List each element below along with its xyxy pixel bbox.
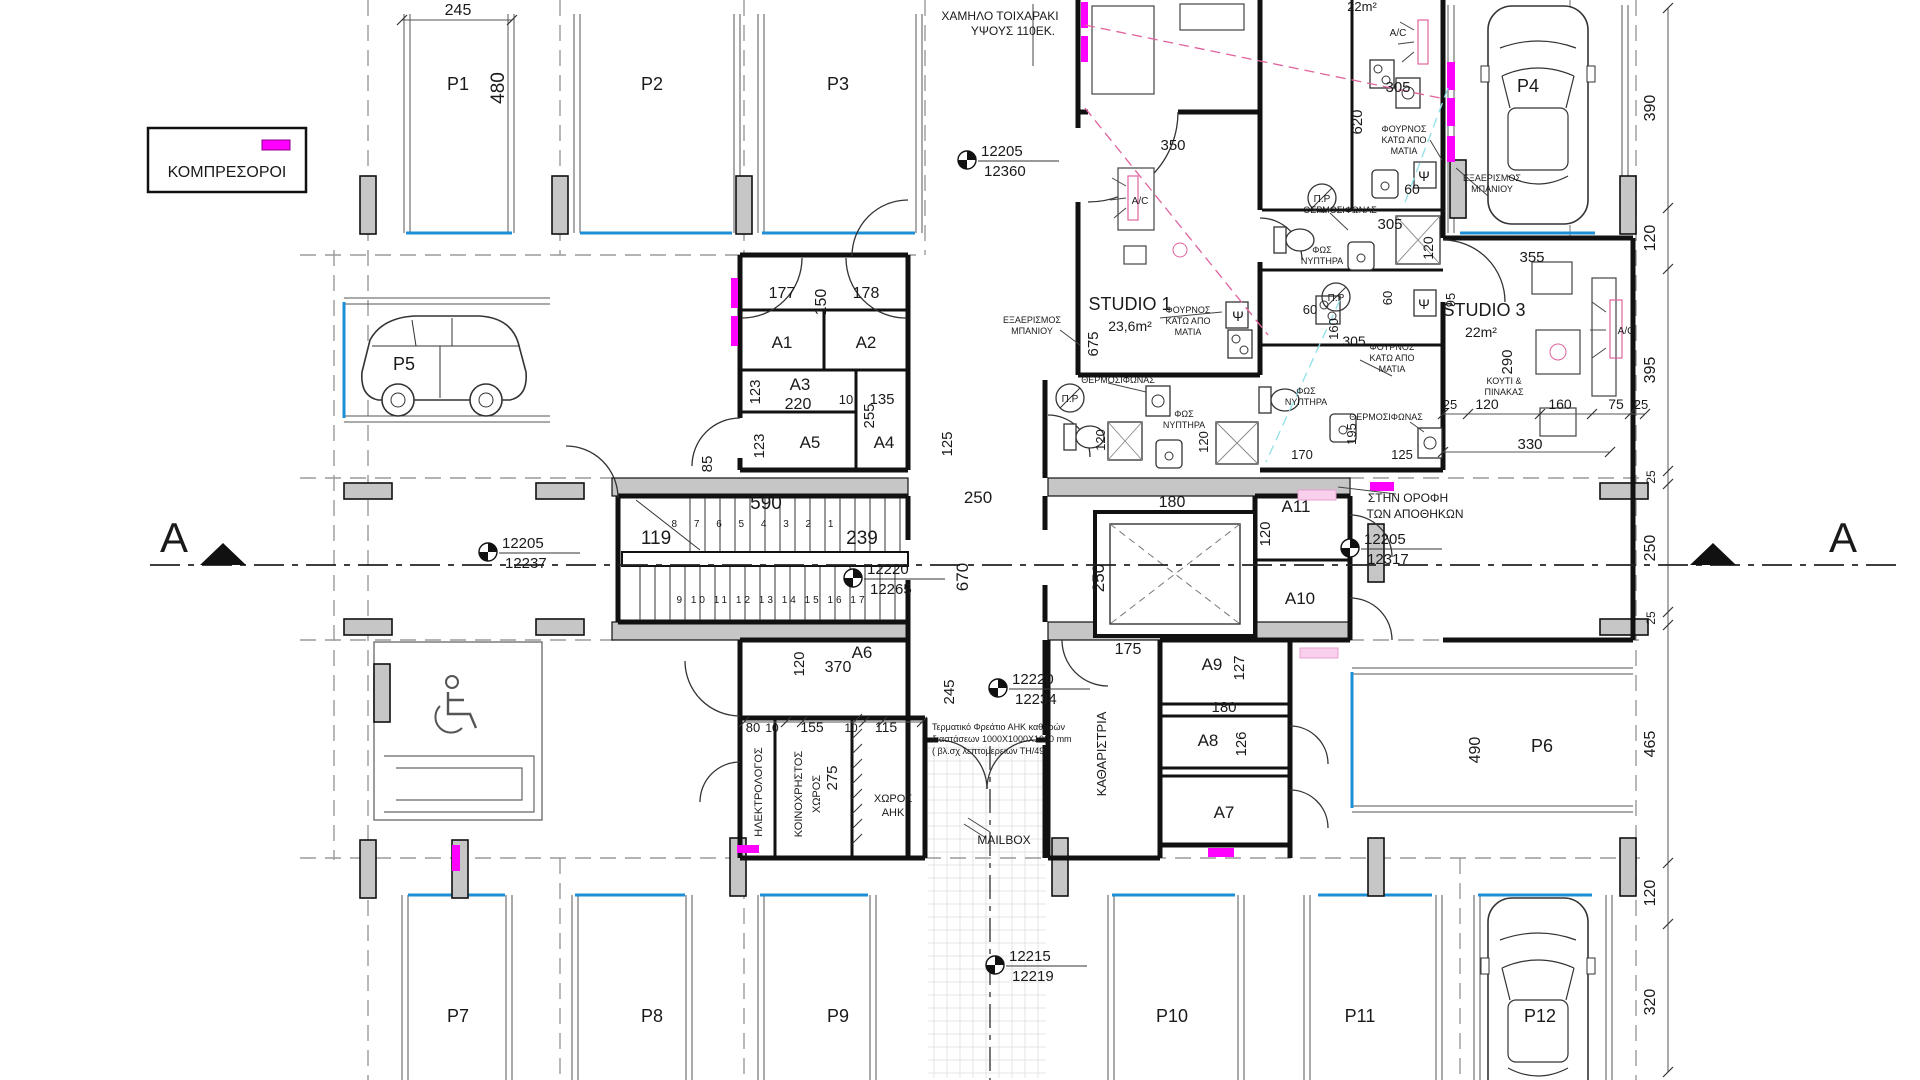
section-arrow-right [1690,543,1736,565]
dimension-123-36: 123 [747,379,764,404]
door-arc-14 [1290,790,1328,828]
stair-numbers-upper: 8 7 6 5 4 3 2 1 [672,519,841,530]
floor-plan-drawing: 1220512360122051223712220122651220512317… [0,0,1920,1080]
dimension-lines [397,3,1673,1077]
dimension-25-7: 25 [1644,611,1658,625]
dimension-245-61: 245 [941,679,958,704]
dimension-75-30: 75 [1608,396,1624,412]
door-arc-10 [1443,240,1505,302]
column [1620,838,1636,896]
dimension-275-67: 275 [824,765,841,790]
column [536,483,584,499]
compressor-marker [731,278,738,308]
section-letter-left: A [160,514,188,561]
dimension-120-59: 120 [791,651,808,676]
furniture [1592,278,1616,396]
elevator-shaft [1095,512,1255,636]
door-arc-13 [1290,726,1328,764]
parking-label-P9: P9 [827,1006,849,1026]
annotation-38: ΚΟΥΤΙ & [1487,376,1522,386]
annotation-13: ΜΑΤΙΑ [1175,327,1202,337]
column [1600,483,1648,499]
driveway-hatch [928,744,1046,1080]
section-marker-left: A [160,514,246,565]
dimension-305-12: 305 [1385,79,1410,96]
annotation-39: ΠΙΝΑΚΑΣ [1484,387,1524,397]
parking-label-P4: P4 [1517,76,1539,96]
dimension-60-21: 60 [1380,291,1395,305]
compressor-marker [452,845,460,871]
door-arc-12 [1350,598,1392,640]
car-symbols [362,6,1595,1080]
dimension-10-65: 10 [844,721,858,735]
room-label-A4: A4 [874,433,895,452]
annotation-19: ΜΑΤΙΑ [1379,364,1406,374]
label-studio2-area: 22m² [1347,0,1377,14]
furniture [1532,262,1572,294]
column [344,483,392,499]
column [1368,838,1384,896]
annotation-31: Π.Ρ [1328,293,1345,304]
dimension-370-60: 370 [825,659,852,676]
text-labels: 2454803901203952525025465120320350305620… [393,0,1659,1026]
dimension-10-63: 10 [765,721,779,735]
dimension-125-42: 125 [939,431,956,456]
note-vent-bath-2b: ΜΠΑΝΙΟΥ [1471,184,1513,194]
stair-landing-rail [622,552,908,566]
dimension-25-5: 25 [1644,470,1658,484]
furniture [1092,6,1154,94]
column [552,176,568,234]
annotation-26: ΝΥΠΤΗΡΑ [1163,420,1205,430]
dimension-330-32: 330 [1517,436,1542,453]
dimension-175-55: 175 [1115,641,1142,658]
leader-line-7 [1410,422,1424,432]
annotation-18: ΚΑΤΩ ΑΠΟ [1370,353,1415,363]
dimension-465-8: 465 [1642,731,1659,758]
column [1450,160,1466,218]
survey-marker-12205-12237: 1220512237 [479,535,580,572]
dimension-180-49: 180 [1159,494,1186,511]
dimension-120-51: 120 [1257,521,1274,546]
dimension-180-57: 180 [1211,699,1236,716]
dimension-123-41: 123 [751,433,768,458]
annotation-12: ΚΑΤΩ ΑΠΟ [1166,316,1211,326]
sink [1156,440,1182,468]
compressor-marker [731,316,738,346]
note-ahk-2: διαστάσεων 1000X1000X1000 mm [932,734,1072,744]
annotation-21: ΘΕΡΜΟΣΙΦΩΝΑΣ [1081,375,1155,385]
furniture [1180,4,1244,30]
label-studio1: STUDIO 1 [1088,294,1171,314]
annotation-40: ΣΤΗΝ ΟΡΟΦΗ [1368,491,1448,505]
column [1600,619,1648,635]
survey-upper-value: 12220 [1012,671,1054,688]
parking-label-P3: P3 [827,74,849,94]
column [360,840,376,898]
annotation-15: ΚΑΤΩ ΑΠΟ [1382,135,1427,145]
survey-upper-value: 12220 [867,561,909,578]
annotation-47: ΑΗΚ [882,807,905,819]
column [1620,176,1636,234]
label-studio3-area: 22m² [1465,324,1497,340]
compressor-marker [1081,2,1088,28]
dimension-480-1: 480 [488,72,509,104]
annotation-42: ΚΑΘΑΡΙΣΤΡΙΑ [1094,711,1109,796]
annotation-46: ΧΩΡΟΣ [874,793,912,805]
dimension-120-28: 120 [1475,396,1499,412]
survey-lower-value: 12219 [1012,968,1054,985]
toilet-tank [1064,424,1076,450]
column [374,664,390,722]
annotation-43: ΗΛΕΚΤΡΟΛΟΓΟΣ [753,747,765,837]
room-label-A2: A2 [856,333,877,352]
dimension-120-9: 120 [1642,880,1659,907]
toilet-tank [1259,387,1271,413]
annotation-11: ΦΟΥΡΝΟΣ [1166,305,1211,315]
annotation-27: ΦΩΣ [1296,386,1316,396]
annotation-24: ΝΥΠΤΗΡΑ [1301,256,1343,266]
parking-label-P6: P6 [1531,736,1553,756]
dimension-195-24: 195 [1344,423,1359,445]
section-letter-right: A [1829,514,1857,561]
legend-label: ΚΟΜΠΡΕΣΟΡΟΙ [168,164,287,181]
furniture [1124,246,1146,264]
furniture [1536,330,1580,374]
annotation-35: A/C [1132,196,1149,207]
dimension-290-19: 290 [1499,349,1516,374]
annotation-16: ΜΑΤΙΑ [1391,146,1418,156]
dimension-60-20: 60 [1303,302,1317,317]
column [360,176,376,234]
parking-label-P5: P5 [393,354,415,374]
parking-label-P8: P8 [641,1006,663,1026]
annotation-14: ΦΟΥΡΝΟΣ [1382,124,1427,134]
dimension-85-43: 85 [699,456,716,473]
door-arc-5 [685,661,740,716]
leader-line-9 [1430,140,1442,160]
ac-unit [1418,20,1428,64]
stair-numbers-lower: 9 10 11 12 13 14 15 16 17 [676,595,867,606]
column [536,619,584,635]
dimension-160-22: 160 [1326,318,1341,340]
dimension-590-44: 590 [750,493,782,514]
compressor-marker [1081,36,1088,62]
survey-upper-value: 12205 [1364,531,1406,548]
room-label-A6: A6 [852,643,873,662]
survey-lower-value: 12317 [1367,551,1409,568]
dimension-25-31: 25 [1634,397,1648,412]
survey-lower-value: 12237 [505,555,547,572]
label-studio3: STUDIO 3 [1442,300,1525,320]
annotation-30: Π.Ρ [1062,394,1079,405]
floor-plan-page: 1220512360122051223712220122651220512317… [0,0,1920,1080]
note-low-wall-line2: ΥΨΟΥΣ 110ΕΚ. [971,24,1055,38]
dimension-120-3: 120 [1642,225,1659,252]
stove [1228,330,1252,358]
dimension-220-37: 220 [785,396,812,413]
dimension-120-54: 120 [1196,431,1211,453]
dimension-125-26: 125 [1391,447,1413,462]
compressor-marker [1447,98,1455,126]
pale-pink-marker [1300,648,1338,658]
dimension-160-29: 160 [1548,396,1572,412]
survey-marker-12215-12219: 1221512219 [986,948,1087,985]
sink [1372,170,1398,198]
survey-upper-value: 12205 [502,535,544,552]
note-vent-bath-1a: ΕΞΑΕΡΙΣΜΟΣ [1003,315,1061,325]
compressor-marker [1208,848,1234,857]
dimension-150-34: 150 [813,289,830,316]
car-side-view-p5 [362,316,526,416]
legend-box [148,128,306,192]
section-marker-right: A [1690,514,1857,565]
accessible-parking-symbol [435,676,476,733]
dimension-119-45: 119 [641,528,671,549]
room-label-A8: A8 [1198,731,1219,750]
slab-band-1 [612,622,908,640]
dimension-255-40: 255 [861,403,878,428]
note-ahk-3: ( βλ.σχ λεπτομερειών ΤΗ/49) [932,746,1047,756]
annotation-22: ΘΕΡΜΟΣΙΦΩΝΑΣ [1349,412,1423,422]
car-top-view [1481,898,1595,1080]
annotation-44: ΚΟΙΝΟΧΡΗΣΤΟΣ [793,751,805,838]
compressor-marker [1447,62,1455,90]
dimension-170-25: 170 [1291,447,1313,462]
survey-upper-value: 12205 [981,143,1023,160]
water-heater [1418,428,1442,458]
survey-lower-value: 12360 [984,163,1026,180]
door-arc-3 [852,200,908,256]
annotation-34: Ψ [1232,308,1244,324]
dimension-305-23: 305 [1342,333,1366,349]
sink [1348,242,1374,270]
light-circle [1173,243,1187,257]
parking-label-P7: P7 [447,1006,469,1026]
accessible-platform [384,756,534,812]
room-label-A10: A10 [1285,589,1315,608]
annotation-20: ΘΕΡΜΟΣΙΦΩΝΑΣ [1303,205,1377,215]
dimension-675-52: 675 [1085,331,1102,356]
room-label-A1: A1 [772,333,793,352]
legend-kompresoroi: ΚΟΜΠΡΕΣΟΡΟΙ [148,128,306,192]
parking-label-P12: P12 [1524,1006,1556,1026]
note-vent-bath-2a: ΕΞΑΕΡΙΣΜΟΣ [1463,173,1521,183]
dimension-239-46: 239 [846,528,878,549]
parking-label-P1: P1 [447,74,469,94]
dimension-250-6: 250 [1642,535,1659,562]
annotation-41: ΤΩΝ ΑΠΟΘΗΚΩΝ [1366,507,1463,521]
dimension-155-64: 155 [800,719,824,735]
column [1052,838,1068,896]
dimension-320-10: 320 [1642,989,1659,1016]
dimension-80-62: 80 [746,720,760,735]
room-label-A7: A7 [1214,803,1235,822]
dimension-350-11: 350 [1160,137,1185,154]
legend-magenta-swatch [262,140,290,150]
note-vent-bath-1b: ΜΠΑΝΙΟΥ [1011,326,1053,336]
compressor-marker [1370,482,1394,491]
annotation-37: A/C [1618,326,1635,337]
survey-upper-value: 12215 [1009,948,1051,965]
dimension-395-4: 395 [1642,357,1659,384]
dimension-250-50: 250 [1089,564,1108,592]
annotation-25: ΦΩΣ [1174,409,1194,419]
dimension-355-17: 355 [1519,249,1544,266]
dimension-250-47: 250 [964,488,992,507]
annotation-23: ΦΩΣ [1312,245,1332,255]
survey-lower-value: 12265 [870,581,912,598]
toilet-bowl [1286,229,1314,251]
parking-label-P2: P2 [641,74,663,94]
dimension-126-58: 126 [1233,731,1250,756]
room-label-A9: A9 [1202,655,1223,674]
dimension-620-13: 620 [1349,109,1366,134]
column [736,176,752,234]
dimension-25-27: 25 [1443,397,1457,412]
note-ahk-1: Τερματικό Φρεάτιο ΑΗΚ καθαρών [932,722,1066,732]
compressor-marker [737,845,759,853]
dimension-670-48: 670 [953,563,972,591]
annotation-28: ΝΥΠΤΗΡΑ [1285,397,1327,407]
dimension-490-68: 490 [1467,737,1484,764]
dimension-120-53: 120 [1093,429,1108,451]
dimension-127-56: 127 [1231,655,1248,680]
furniture [1540,408,1576,436]
survey-marker-12205-12317: 1220512317 [1341,531,1442,568]
survey-marker-12220-12234: 1222012234 [989,671,1090,708]
dimension-115-66: 115 [875,719,898,735]
label-studio1-area: 23,6m² [1108,318,1152,334]
dimension-178-35: 178 [853,285,880,302]
dimension-245-0: 245 [445,2,472,19]
dimension-177-33: 177 [769,285,796,302]
leader-line-5 [1330,213,1348,230]
room-label-A11: A11 [1282,497,1311,516]
label-mailbox: MAILBOX [977,833,1030,847]
water-heater [1146,386,1170,416]
survey-marker-12205-12360: 1220512360 [958,143,1059,180]
annotation-45: ΧΩΡΟΣ [811,775,823,813]
elevator-walls [1095,512,1255,636]
survey-lower-value: 12234 [1015,691,1057,708]
column [344,619,392,635]
dimension-305-15: 305 [1377,216,1402,233]
door-arc-17 [1062,640,1108,686]
section-arrow-left [200,543,246,565]
room-label-A5: A5 [800,433,821,452]
dimension-390-2: 390 [1642,95,1659,122]
dimension-120-16: 120 [1420,236,1436,260]
annotation-29: Π.Ρ [1314,194,1331,205]
annotation-36: A/C [1390,28,1407,39]
note-low-wall-line1: ΧΑΜΗΛΟ ΤΟΙΧΑΡΑΚΙ [941,9,1058,23]
toilet-tank [1274,227,1286,253]
annotation-17: ΦΟΥΡΝΟΣ [1370,342,1415,352]
compressor-marker [1447,136,1455,162]
parking-label-P10: P10 [1156,1006,1188,1026]
annotation-32: Ψ [1418,168,1430,184]
room-label-A3: A3 [790,375,811,394]
annotation-33: Ψ [1418,296,1430,312]
door-arc-6 [700,762,740,802]
parking-label-P11: P11 [1345,1006,1376,1026]
wheelchair-icon [435,676,476,733]
dimension-10-38: 10 [839,392,853,407]
